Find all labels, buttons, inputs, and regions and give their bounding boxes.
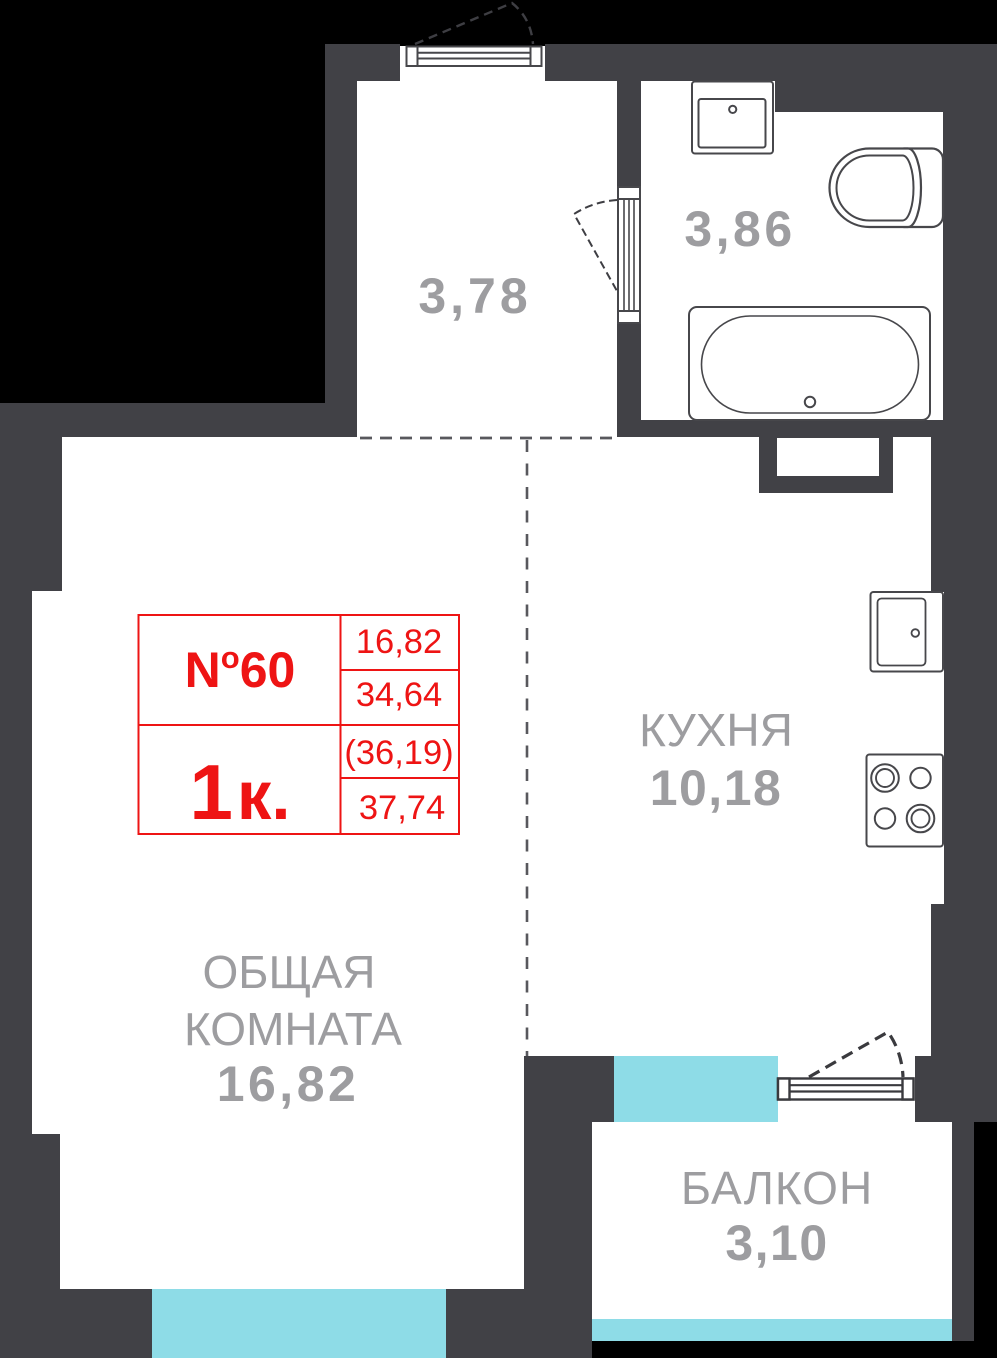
svg-text:34,64: 34,64 [356, 676, 442, 714]
svg-text:БАЛКОН: БАЛКОН [681, 1162, 873, 1214]
svg-text:3,10: 3,10 [725, 1215, 828, 1271]
svg-text:3,86: 3,86 [684, 201, 795, 257]
svg-text:3,78: 3,78 [418, 268, 531, 324]
svg-text:16,82: 16,82 [356, 623, 442, 661]
svg-text:No60: No60 [185, 640, 296, 698]
svg-text:1к.: 1к. [189, 748, 290, 836]
svg-text:КОМНАТА: КОМНАТА [184, 1003, 402, 1055]
svg-text:КУХНЯ: КУХНЯ [639, 704, 793, 756]
svg-text:(36,19): (36,19) [344, 734, 453, 772]
svg-text:37,74: 37,74 [359, 789, 445, 827]
svg-text:10,18: 10,18 [650, 760, 783, 816]
svg-text:16,82: 16,82 [217, 1056, 360, 1112]
svg-text:ОБЩАЯ: ОБЩАЯ [203, 946, 376, 998]
